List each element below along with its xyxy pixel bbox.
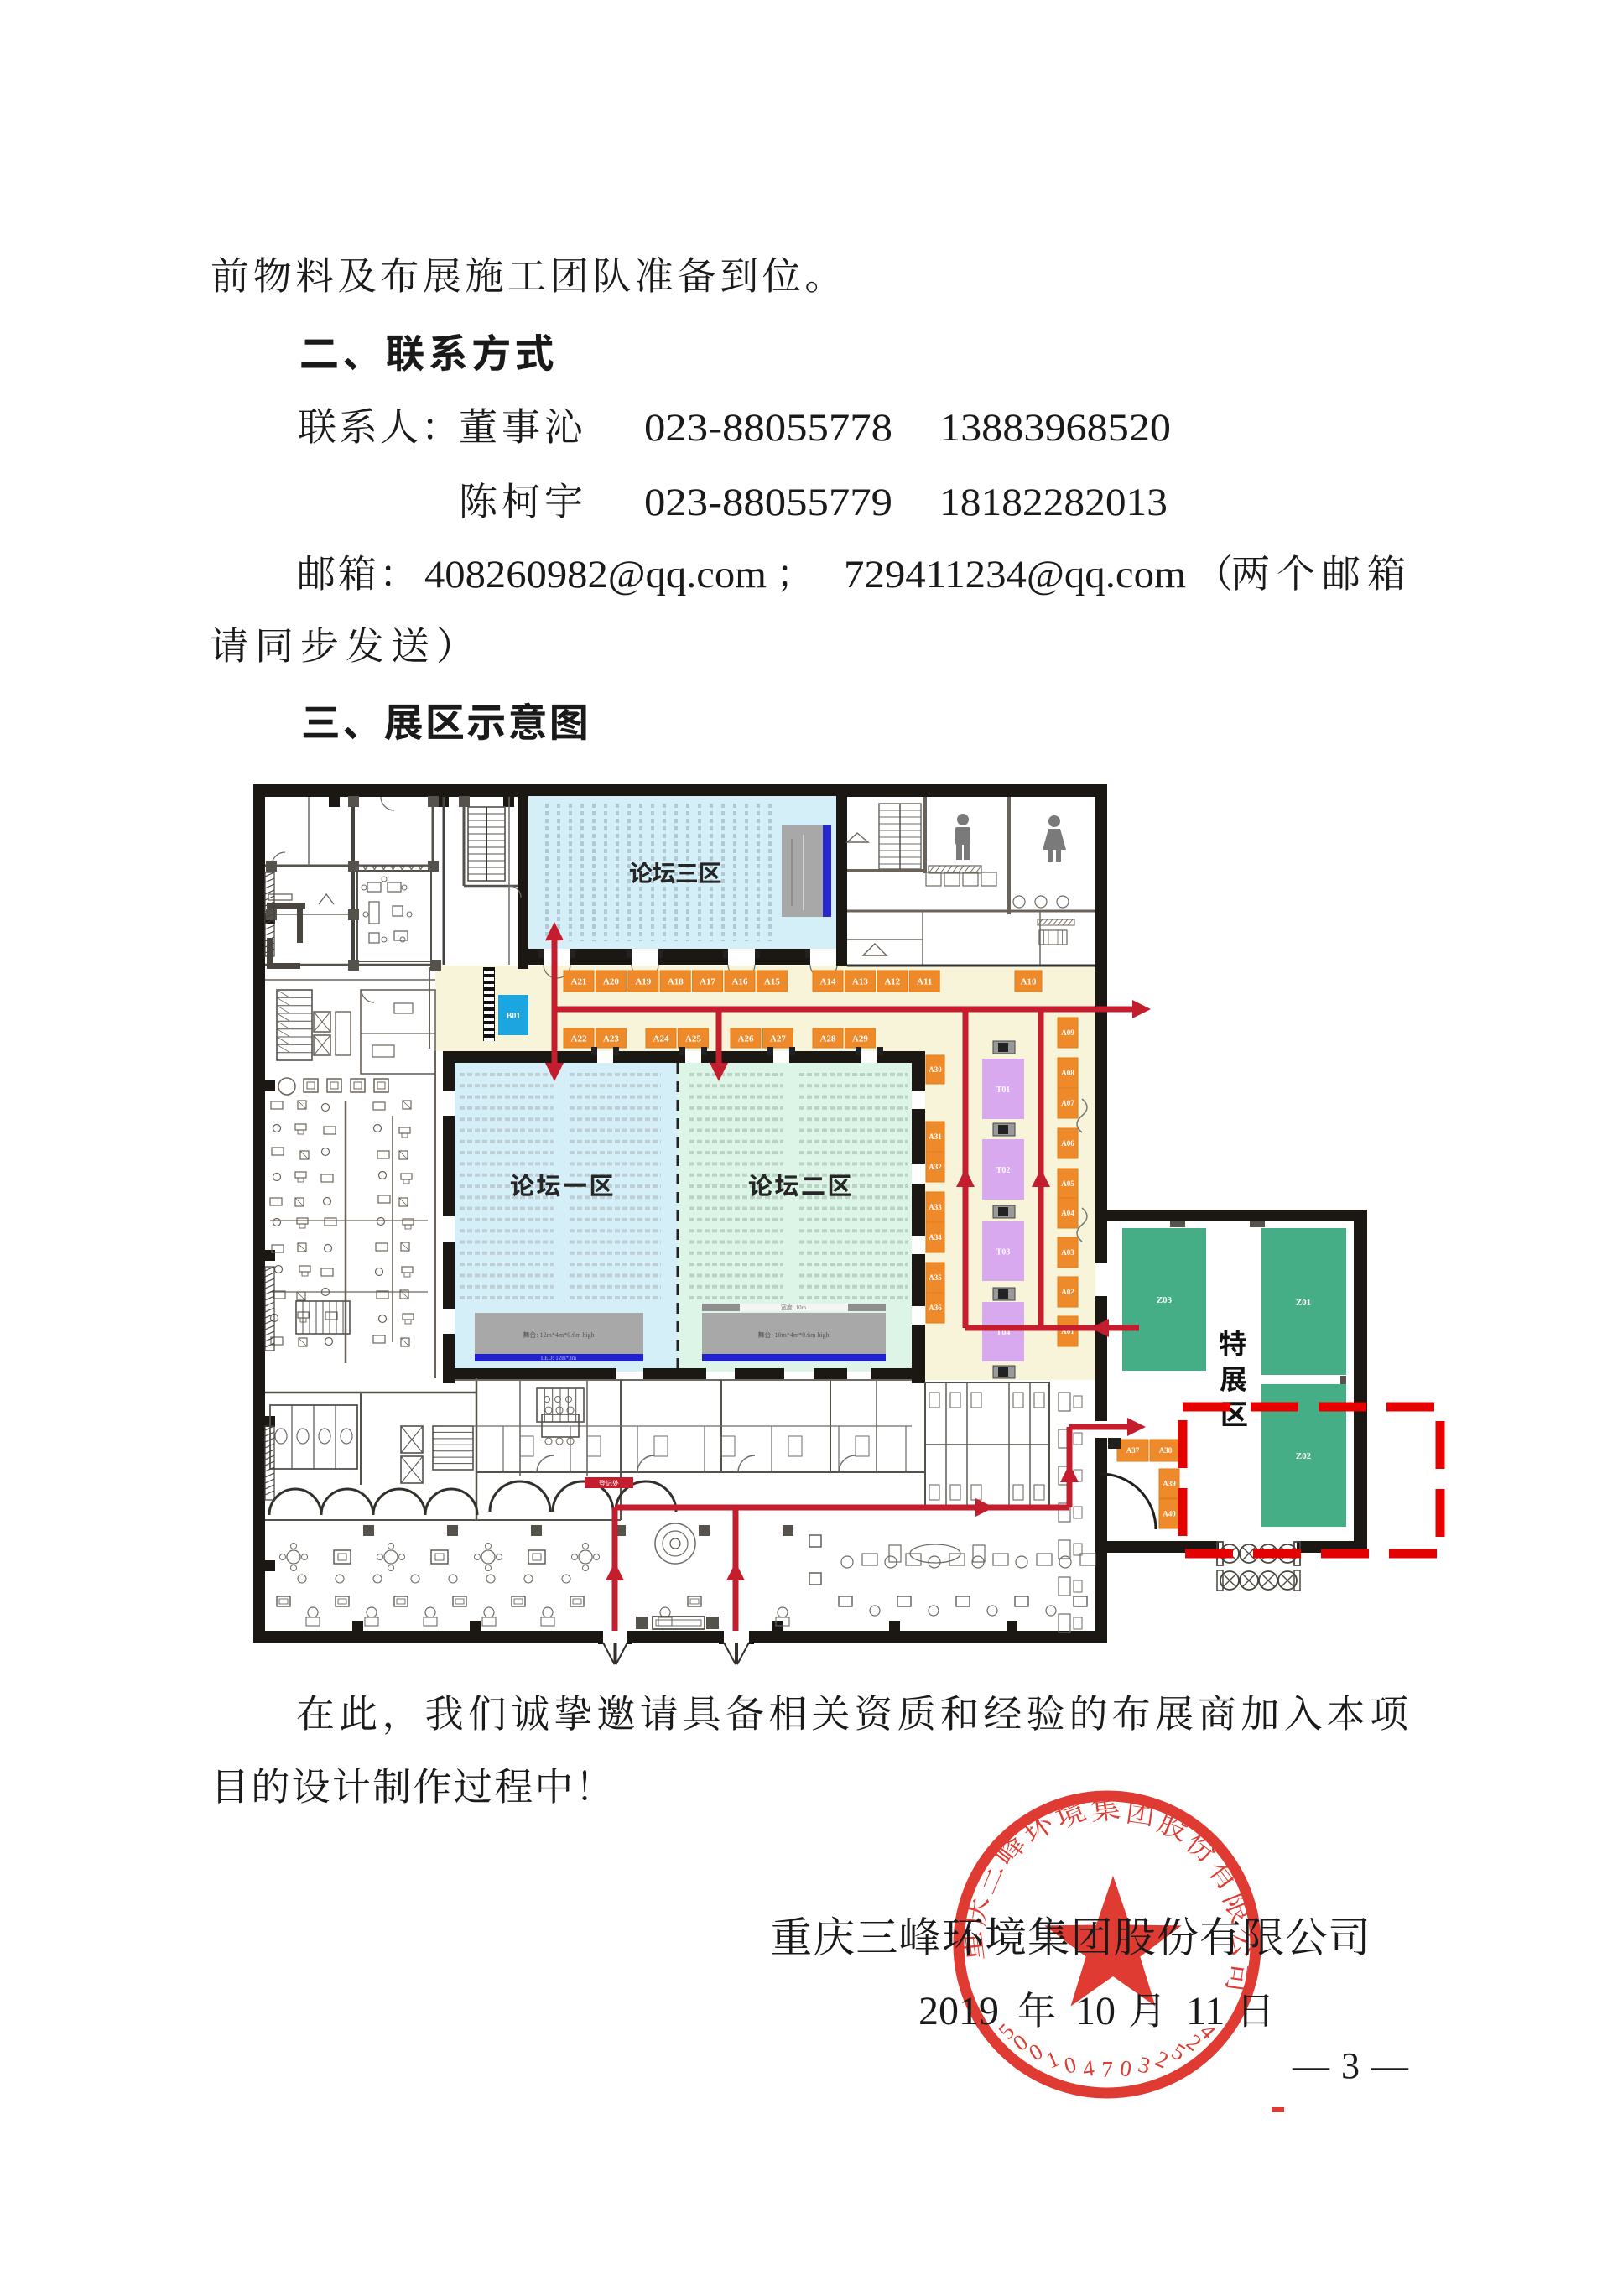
svg-text:11: 11 bbox=[1186, 1989, 1225, 2033]
svg-text:A06: A06 bbox=[1061, 1139, 1074, 1148]
svg-text:LED: 12m*3m: LED: 12m*3m bbox=[541, 1355, 577, 1361]
svg-text:A25: A25 bbox=[685, 1033, 701, 1044]
svg-text:A26: A26 bbox=[738, 1033, 754, 1044]
svg-text:A40: A40 bbox=[1163, 1510, 1176, 1518]
svg-text:—: — bbox=[1292, 2045, 1330, 2086]
svg-text:023-88055778: 023-88055778 bbox=[644, 406, 892, 450]
svg-text:A03: A03 bbox=[1061, 1248, 1074, 1257]
svg-text:4: 4 bbox=[1081, 2055, 1096, 2082]
svg-text:408260982@qq.com: 408260982@qq.com bbox=[424, 553, 767, 596]
svg-text:A36: A36 bbox=[929, 1304, 942, 1312]
svg-text:舞台: 12m*4m*0.6m high: 舞台: 12m*4m*0.6m high bbox=[523, 1330, 594, 1339]
svg-text:A37: A37 bbox=[1126, 1446, 1140, 1455]
svg-text:A16: A16 bbox=[732, 976, 748, 987]
svg-text:A17: A17 bbox=[700, 976, 715, 987]
svg-text:宽度: 10m: 宽度: 10m bbox=[781, 1304, 807, 1311]
svg-text:A27: A27 bbox=[770, 1033, 786, 1044]
svg-text:舞台: 10m*4m*0.6m high: 舞台: 10m*4m*0.6m high bbox=[757, 1330, 829, 1339]
svg-text:登记处: 登记处 bbox=[599, 1479, 619, 1487]
svg-text:A22: A22 bbox=[571, 1033, 587, 1044]
svg-text:T02: T02 bbox=[996, 1166, 1011, 1175]
svg-text:B01: B01 bbox=[507, 1012, 521, 1021]
svg-text:729411234@qq.com: 729411234@qq.com bbox=[844, 553, 1186, 596]
svg-text:10: 10 bbox=[1075, 1989, 1116, 2033]
svg-text:A15: A15 bbox=[764, 976, 780, 987]
svg-text:T01: T01 bbox=[996, 1086, 1011, 1095]
svg-text:A39: A39 bbox=[1163, 1480, 1176, 1488]
svg-text:A02: A02 bbox=[1061, 1288, 1074, 1296]
svg-text:A19: A19 bbox=[635, 976, 651, 987]
svg-text:T03: T03 bbox=[996, 1248, 1011, 1257]
svg-text:Z01: Z01 bbox=[1296, 1298, 1311, 1308]
svg-text:A28: A28 bbox=[820, 1033, 836, 1044]
svg-text:A13: A13 bbox=[852, 976, 868, 987]
svg-text:Z03: Z03 bbox=[1157, 1295, 1173, 1305]
svg-text:A12: A12 bbox=[884, 976, 900, 987]
svg-text:0: 0 bbox=[1119, 2055, 1133, 2082]
svg-text:A30: A30 bbox=[929, 1065, 942, 1074]
svg-text:A18: A18 bbox=[668, 976, 684, 987]
svg-text:A11: A11 bbox=[917, 976, 932, 987]
svg-text:A05: A05 bbox=[1061, 1179, 1074, 1188]
svg-text:2019: 2019 bbox=[918, 1989, 999, 2033]
svg-text:Z02: Z02 bbox=[1296, 1451, 1312, 1461]
svg-text:7: 7 bbox=[1101, 2057, 1113, 2082]
svg-text:A31: A31 bbox=[929, 1132, 942, 1141]
svg-text:3: 3 bbox=[1341, 2045, 1360, 2086]
svg-text:A20: A20 bbox=[603, 976, 619, 987]
svg-text:A24: A24 bbox=[653, 1033, 669, 1044]
svg-text:A04: A04 bbox=[1061, 1209, 1074, 1217]
svg-text:A34: A34 bbox=[929, 1233, 942, 1242]
svg-text:A33: A33 bbox=[929, 1203, 942, 1211]
svg-text:A38: A38 bbox=[1159, 1446, 1173, 1455]
svg-text:A08: A08 bbox=[1061, 1069, 1074, 1077]
svg-text:A07: A07 bbox=[1061, 1099, 1074, 1107]
svg-text:A21: A21 bbox=[571, 976, 587, 987]
svg-text:A10: A10 bbox=[1021, 976, 1037, 987]
svg-text:3: 3 bbox=[1136, 2051, 1153, 2079]
svg-text:A09: A09 bbox=[1061, 1028, 1074, 1037]
svg-text:A35: A35 bbox=[929, 1273, 942, 1282]
svg-text:A29: A29 bbox=[852, 1033, 868, 1044]
svg-text:0: 0 bbox=[1061, 2051, 1079, 2078]
svg-text:A23: A23 bbox=[603, 1033, 619, 1044]
svg-text:023-88055779: 023-88055779 bbox=[644, 481, 892, 524]
svg-text:—: — bbox=[1371, 2045, 1409, 2086]
svg-text:A32: A32 bbox=[929, 1163, 942, 1171]
svg-text:A14: A14 bbox=[820, 976, 836, 987]
svg-text:13883968520: 13883968520 bbox=[939, 406, 1171, 450]
svg-text:18182282013: 18182282013 bbox=[939, 481, 1168, 524]
